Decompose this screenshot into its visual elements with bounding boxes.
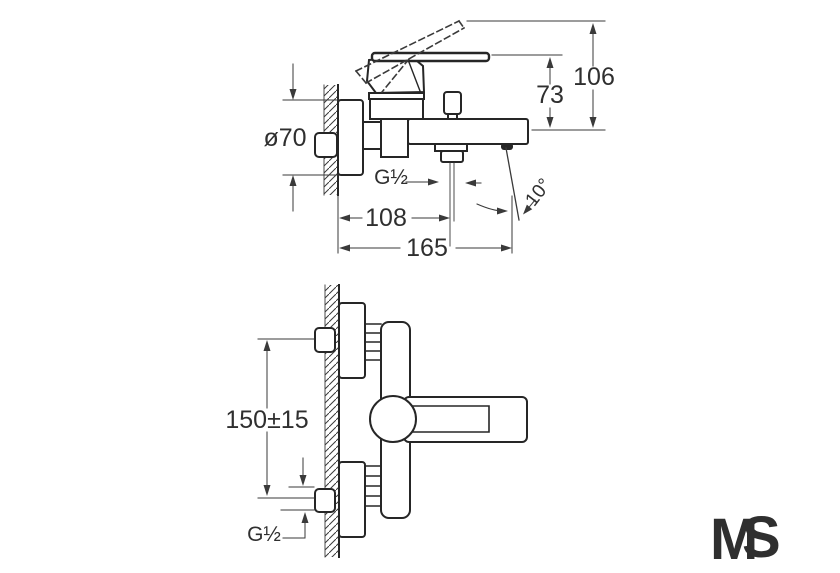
- dim-label-outlet-offset: 108: [365, 204, 407, 232]
- shower-outlet: [435, 144, 467, 162]
- front-wall-hatch: [325, 285, 339, 557]
- dim-label-shower-outlet-thread: G½: [374, 166, 408, 189]
- dim-spout-reach: 165: [339, 234, 512, 262]
- faucet-technical-drawing: ø70 106 73 G½: [0, 0, 840, 573]
- side-view: ø70 106 73 G½: [263, 21, 614, 262]
- side-escutcheon: [338, 100, 363, 175]
- dim-label-handle-height: 73: [536, 81, 564, 109]
- dim-connection-spacing: 150±15: [225, 339, 314, 498]
- handle-front: [370, 396, 527, 442]
- dim-label-spout-reach: 165: [406, 234, 448, 262]
- front-bottom-nut: [315, 489, 335, 512]
- dim-label-spout-angle: 10°: [522, 175, 556, 211]
- dim-overall-height: 106: [467, 21, 615, 128]
- front-top-nut: [315, 328, 335, 352]
- dim-label-connection-spacing: 150±15: [225, 406, 308, 434]
- dim-label-overall-height: 106: [573, 63, 615, 91]
- front-view: 150±15 G½: [225, 285, 527, 557]
- spout-aerator: [501, 143, 513, 150]
- water-stream-line: [506, 148, 519, 253]
- front-top-escutcheon: [339, 303, 365, 378]
- diverter-knob: [444, 92, 461, 119]
- dim-label-escutcheon-diameter: ø70: [263, 124, 306, 152]
- technical-drawing-page: ø70 106 73 G½: [0, 0, 840, 573]
- logo-letter-s: S: [742, 505, 781, 568]
- dim-handle-height: 73: [492, 55, 564, 128]
- front-bottom-escutcheon: [339, 462, 365, 537]
- dim-label-connection-thread: G½: [247, 523, 281, 546]
- dim-connection-thread: G½: [247, 458, 314, 546]
- side-mounting-nut: [315, 133, 337, 157]
- logo: M S: [706, 498, 816, 568]
